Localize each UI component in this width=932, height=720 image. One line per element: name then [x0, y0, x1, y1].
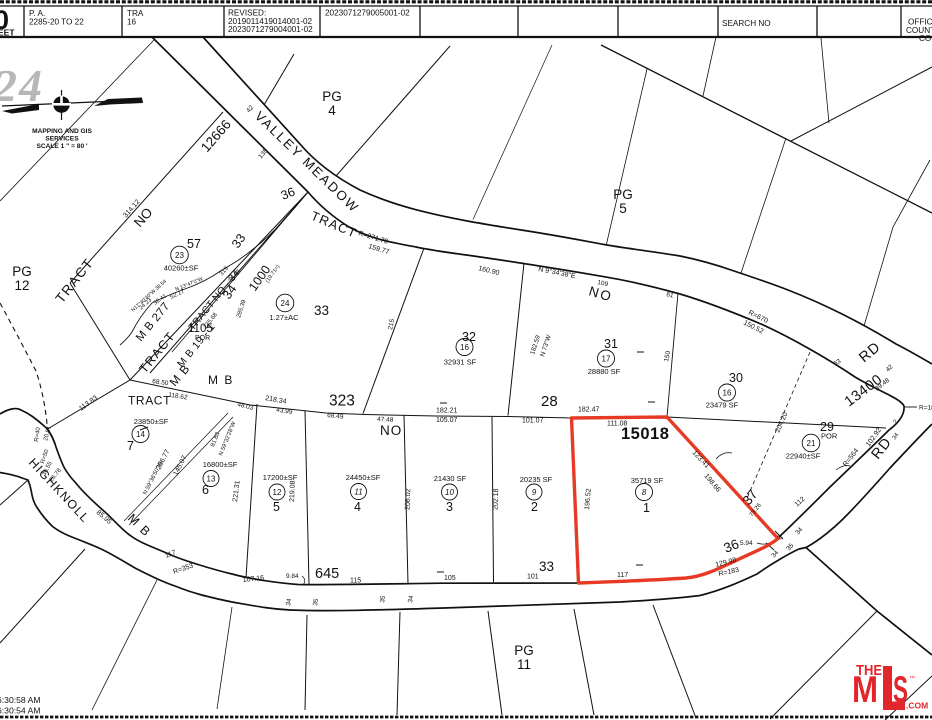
svg-text:22940±SF: 22940±SF — [786, 452, 821, 461]
svg-text:105.07: 105.07 — [436, 417, 458, 424]
svg-text:™: ™ — [909, 675, 915, 682]
svg-text:PG: PG — [322, 89, 342, 104]
svg-text:47.48: 47.48 — [377, 416, 394, 424]
svg-text:16: 16 — [723, 389, 732, 398]
svg-text:TRACT: TRACT — [128, 394, 171, 408]
svg-text:182.47: 182.47 — [578, 407, 600, 414]
svg-text:117: 117 — [617, 572, 628, 579]
svg-text:11: 11 — [517, 657, 531, 672]
svg-text:6:30:54 AM: 6:30:54 AM — [0, 706, 40, 716]
svg-text:6:30:58 AM: 6:30:58 AM — [0, 695, 40, 705]
svg-text:3: 3 — [446, 500, 453, 514]
svg-text:16: 16 — [460, 343, 469, 352]
svg-text:21430 SF: 21430 SF — [434, 474, 467, 483]
svg-text:R=18: R=18 — [919, 405, 932, 412]
svg-text:28880 SF: 28880 SF — [588, 367, 621, 376]
svg-text:206.02: 206.02 — [405, 488, 413, 510]
svg-text:645: 645 — [315, 566, 339, 582]
svg-text:23: 23 — [175, 251, 184, 260]
svg-text:2023071279004001-02: 2023071279004001-02 — [228, 25, 313, 34]
svg-text:115: 115 — [350, 578, 361, 585]
svg-text:CO: CO — [919, 34, 931, 43]
svg-text:24: 24 — [281, 299, 290, 308]
svg-text:5: 5 — [619, 201, 627, 216]
svg-text:POR: POR — [821, 432, 838, 441]
svg-text:32: 32 — [462, 330, 476, 344]
svg-text:2285-20 TO 22: 2285-20 TO 22 — [29, 18, 84, 27]
svg-text:14: 14 — [136, 430, 145, 439]
svg-text:28: 28 — [541, 393, 558, 410]
svg-text:9: 9 — [532, 488, 537, 497]
svg-text:23479 SF: 23479 SF — [706, 401, 739, 410]
svg-text:5.94: 5.94 — [740, 540, 753, 547]
svg-text:24: 24 — [0, 60, 44, 111]
svg-text:24450±SF: 24450±SF — [346, 473, 381, 482]
svg-text:30: 30 — [729, 371, 743, 385]
svg-text:12: 12 — [273, 488, 282, 497]
svg-text:17: 17 — [602, 355, 611, 364]
svg-text:10: 10 — [445, 488, 454, 497]
svg-text:5: 5 — [273, 500, 280, 514]
svg-text:20235 SF: 20235 SF — [520, 475, 553, 484]
svg-text:2: 2 — [531, 500, 538, 514]
svg-text:101.07: 101.07 — [522, 418, 544, 425]
svg-text:4: 4 — [328, 103, 336, 118]
svg-text:202.18: 202.18 — [493, 488, 501, 510]
svg-text:219.08: 219.08 — [289, 480, 297, 502]
svg-text:1.27±AC: 1.27±AC — [269, 313, 299, 322]
svg-text:SCALE 1 " = 80 ': SCALE 1 " = 80 ' — [36, 143, 87, 150]
svg-text:PG: PG — [613, 187, 633, 202]
svg-text:NO: NO — [380, 423, 402, 438]
svg-text:15018: 15018 — [621, 425, 669, 443]
svg-text:33: 33 — [539, 559, 554, 574]
svg-text:POR: POR — [195, 335, 210, 342]
svg-text:4: 4 — [354, 500, 361, 514]
svg-text:SEARCH NO: SEARCH NO — [722, 19, 771, 28]
svg-text:105: 105 — [444, 575, 456, 582]
svg-text:182.21: 182.21 — [436, 408, 458, 415]
svg-text:33: 33 — [314, 303, 329, 318]
svg-text:16800±SF: 16800±SF — [203, 460, 238, 469]
svg-text:23850±SF: 23850±SF — [134, 417, 169, 426]
svg-text:8: 8 — [642, 488, 647, 497]
svg-text:40260±SF: 40260±SF — [164, 264, 199, 273]
svg-text:12: 12 — [14, 278, 29, 293]
svg-text:11: 11 — [354, 488, 362, 497]
svg-text:2023071279005001-02: 2023071279005001-02 — [325, 9, 410, 18]
svg-text:SERVICES: SERVICES — [45, 136, 79, 143]
svg-text:MAPPING AND GIS: MAPPING AND GIS — [32, 128, 92, 135]
svg-text:EET: EET — [0, 28, 15, 38]
svg-text:.COM: .COM — [906, 701, 928, 711]
svg-text:31: 31 — [604, 337, 618, 351]
svg-text:57: 57 — [187, 237, 201, 251]
svg-text:323: 323 — [329, 393, 355, 410]
svg-text:PG: PG — [514, 643, 534, 658]
svg-text:32931 SF: 32931 SF — [444, 358, 477, 367]
svg-text:M B: M B — [208, 373, 234, 387]
svg-text:21: 21 — [807, 439, 816, 448]
svg-text:9.84: 9.84 — [286, 573, 299, 580]
svg-text:7: 7 — [127, 439, 134, 453]
svg-text:1105: 1105 — [188, 323, 213, 335]
svg-text:PG: PG — [12, 264, 32, 279]
svg-text:6: 6 — [202, 483, 209, 497]
svg-text:16: 16 — [127, 18, 137, 27]
svg-text:1: 1 — [643, 501, 650, 515]
svg-text:101: 101 — [527, 574, 539, 581]
svg-text:M: M — [852, 669, 878, 710]
